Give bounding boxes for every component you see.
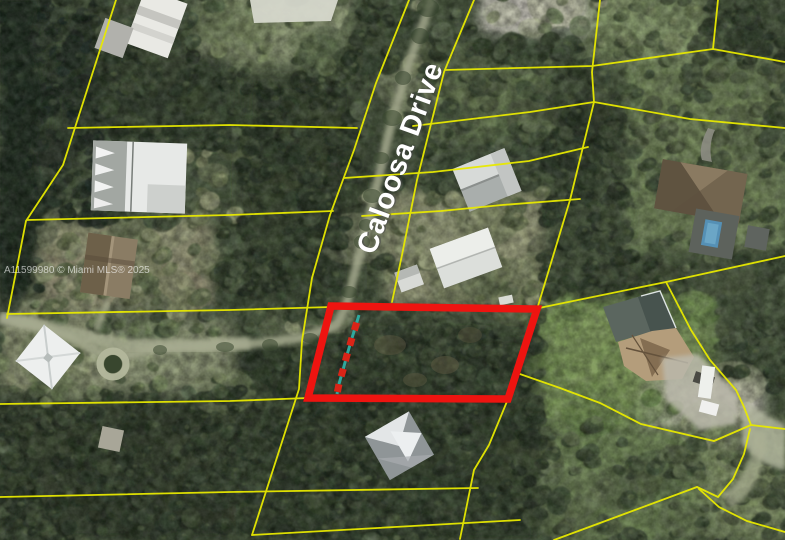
- svg-text:A11599980 © Miami MLS® 2025: A11599980 © Miami MLS® 2025: [4, 265, 150, 276]
